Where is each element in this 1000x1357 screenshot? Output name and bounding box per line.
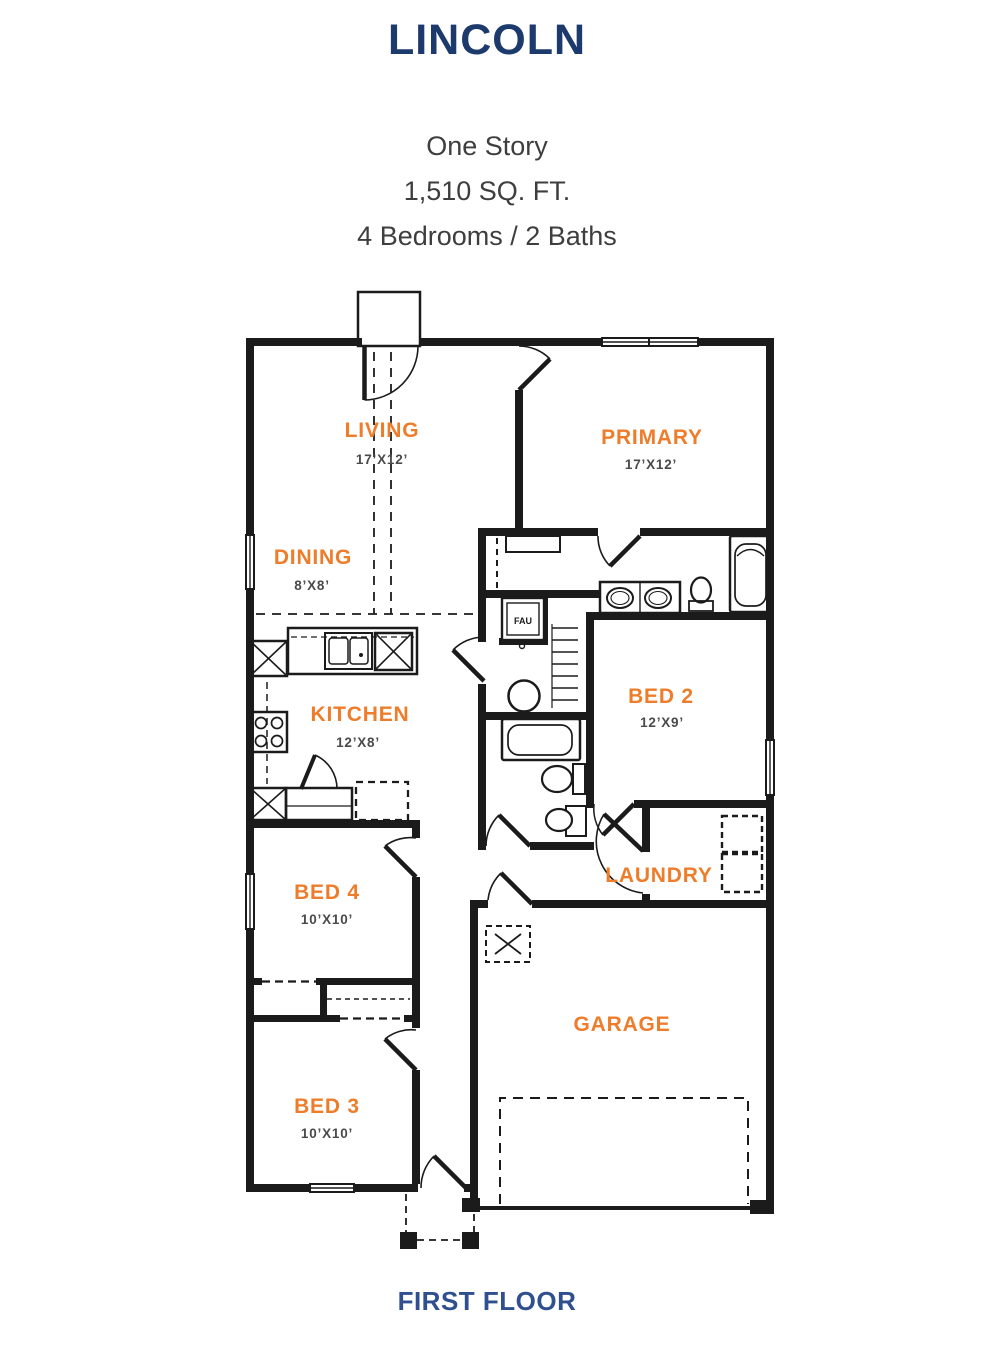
room-dims-primary: 17’X12’ [625, 457, 677, 472]
room-label-dining: DINING [274, 546, 352, 569]
room-label-kitchen: KITCHEN [311, 703, 410, 726]
door-hall-bath-lower [486, 815, 530, 846]
door-bed3 [385, 1030, 416, 1070]
window-bed4-left [246, 874, 254, 929]
bathtub-icon [502, 719, 580, 760]
washer-icon [722, 816, 762, 852]
exterior-walls [246, 338, 774, 1214]
fau-closet: FAU [502, 598, 544, 649]
room-dims-bed4: 10’X10’ [301, 912, 353, 927]
bathtub-icon [730, 536, 771, 612]
laundry-fixtures [722, 816, 762, 892]
door-kitchen-pantry [301, 755, 337, 789]
garage-door-clearance [500, 1098, 748, 1204]
windows [246, 338, 774, 1192]
door-bed2 [594, 804, 634, 835]
base-cabinet-box-icon [250, 788, 286, 820]
room-labels: LIVING 17’X12’ PRIMARY 17’X12’ DINING 8’… [274, 419, 713, 1141]
dishwasher-icon [375, 633, 412, 670]
kitchen-sink-icon [325, 633, 372, 669]
utility-box-icon [486, 926, 530, 962]
room-dims-bed3: 10’X10’ [301, 1126, 353, 1141]
bedroom-closets [246, 978, 420, 1022]
toilet-icon [689, 578, 713, 612]
door-primary-bath [598, 536, 640, 566]
refrigerator-space-icon [356, 782, 408, 820]
room-label-primary: PRIMARY [601, 426, 703, 449]
room-label-laundry: LAUNDRY [605, 864, 712, 887]
floor-plan-drawing: FAU [0, 0, 1000, 1357]
room-label-bed4: BED 4 [294, 881, 360, 904]
window-primary-top [602, 338, 698, 346]
floor-level-label: FIRST FLOOR [0, 1286, 974, 1317]
room-label-living: LIVING [345, 419, 420, 442]
room-label-garage: GARAGE [574, 1013, 671, 1036]
fau-label: FAU [514, 616, 532, 626]
rear-entry-porch [358, 292, 420, 346]
toilet-icon [542, 764, 585, 794]
primary-closet [497, 536, 560, 588]
dryer-icon [722, 854, 762, 892]
pedestal-sink-icon [546, 806, 586, 836]
kitchen-lower-counter [286, 788, 352, 820]
door-primary-bedroom [519, 346, 550, 390]
door-bed4 [385, 838, 416, 877]
room-dims-bed2: 12’X9’ [640, 715, 684, 730]
door-front-entry [421, 1156, 466, 1188]
door-garage [488, 873, 532, 904]
linen-shelves [552, 624, 578, 708]
window-bed2-right [766, 740, 774, 795]
refrigerator-box-icon [250, 641, 287, 676]
water-heater-icon [509, 681, 540, 712]
garage-fixtures [486, 926, 748, 1204]
window-bed3-bottom [310, 1184, 354, 1192]
room-dims-living: 17’X12’ [356, 452, 408, 467]
hall-bathroom-fixtures [502, 624, 586, 836]
window-dining-left [246, 535, 254, 589]
floor-plan-page: LINCOLN One Story 1,510 SQ. FT. 4 Bedroo… [0, 0, 1000, 1357]
vanity-double-sink-icon [600, 582, 680, 613]
room-dims-dining: 8’X8’ [294, 578, 330, 593]
stove-icon [250, 712, 287, 752]
room-label-bed3: BED 3 [294, 1095, 360, 1118]
kitchen-counter [288, 628, 417, 674]
room-label-bed2: BED 2 [628, 685, 694, 708]
door-hall-bath-upper [453, 637, 484, 681]
room-dims-kitchen: 12’X8’ [336, 735, 380, 750]
